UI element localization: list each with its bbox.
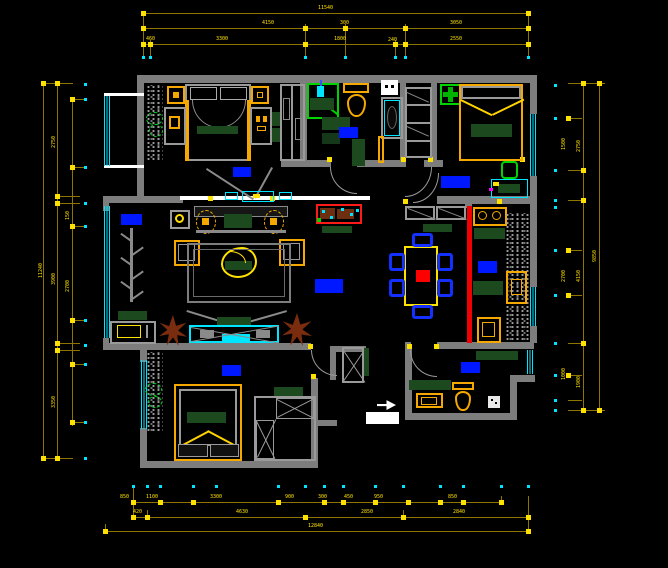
entry-rug[interactable]	[322, 226, 352, 233]
kitchen-appliance-inner[interactable]	[482, 322, 495, 337]
wall-bath2-south	[405, 413, 517, 420]
bed3-footboard[interactable]	[178, 444, 208, 457]
toilet-tank[interactable]	[343, 83, 369, 93]
label-balcony[interactable]	[121, 214, 142, 225]
dim-dot	[323, 485, 326, 488]
tv-cabinet-box[interactable]	[256, 330, 270, 338]
dim-tick	[303, 42, 308, 47]
wall-balcony-south	[103, 343, 161, 350]
dim-text: 2850	[361, 509, 373, 515]
dresser-knob[interactable]	[256, 116, 260, 122]
dim-dot	[404, 56, 407, 59]
dim-dot	[304, 485, 307, 488]
dresser-lamp[interactable]	[169, 116, 180, 129]
dim-line-top-1	[143, 13, 529, 14]
wall-east-3	[530, 326, 537, 343]
balcony-green-shelf[interactable]	[118, 311, 147, 320]
dim-line-left-3	[72, 99, 73, 426]
console-star[interactable]	[322, 210, 325, 213]
dim-dot	[402, 485, 405, 488]
dim-text: 1000	[561, 368, 567, 380]
dim-text: 2700	[65, 280, 71, 292]
dim-tick	[131, 515, 136, 520]
dim-tick	[343, 26, 348, 31]
label-kitchen[interactable]	[478, 261, 497, 273]
desk-keyboard[interactable]	[498, 184, 520, 193]
dim-line-top-3	[143, 44, 529, 45]
kitchen-green-bar[interactable]	[473, 281, 503, 295]
toilet-bowl[interactable]	[347, 94, 366, 117]
dim-ext	[568, 400, 582, 401]
dim-tick	[403, 26, 408, 31]
dim-ext	[57, 350, 80, 351]
dim-text: 2750	[576, 140, 582, 152]
dim-dot	[277, 485, 280, 488]
dim-dot	[149, 56, 152, 59]
wall-b3-south	[140, 461, 318, 468]
dim-text: 2550	[450, 36, 462, 42]
dim-tick	[461, 500, 466, 505]
dim-tick	[55, 81, 60, 86]
dim-tick	[581, 81, 586, 86]
dim-dot	[527, 485, 530, 488]
dim-dot	[159, 485, 162, 488]
dim-text: 4150	[262, 20, 274, 26]
dim-dot	[215, 485, 218, 488]
shower-shelf[interactable]	[310, 98, 334, 110]
washing-machine-door[interactable]	[117, 325, 141, 338]
dim-tick	[70, 224, 75, 229]
dim-text: 3350	[51, 396, 57, 408]
dim-tick	[158, 500, 163, 505]
tv-screen[interactable]	[217, 317, 251, 325]
dim-tick	[141, 26, 146, 31]
door-marker[interactable]	[208, 196, 213, 201]
dim-text: 300	[318, 494, 327, 500]
dim-line-top-2	[143, 28, 529, 29]
wall-top	[137, 75, 537, 83]
dim-dot	[132, 485, 135, 488]
dim-dot	[554, 117, 557, 120]
potted-plant[interactable]	[282, 313, 312, 346]
dim-dot	[554, 169, 557, 172]
sideboard-b1[interactable]	[279, 192, 292, 200]
shelf-green[interactable]	[272, 112, 280, 126]
cad-floor-plan-canvas[interactable]: 1154041503003050460330018002402550850110…	[0, 0, 668, 568]
wardrobe-cell[interactable]	[295, 118, 302, 140]
dim-text: 3300	[216, 36, 228, 42]
dim-ext	[57, 343, 80, 344]
door-arc-bathroom2[interactable]	[410, 350, 437, 377]
dim-text: 3050	[450, 20, 462, 26]
dim-tick	[581, 198, 586, 203]
entry-window-dot[interactable]	[385, 85, 388, 88]
label-dining[interactable]	[441, 176, 470, 188]
dim-dot	[84, 363, 87, 366]
dining-chair[interactable]	[389, 253, 405, 271]
dim-dot	[84, 344, 87, 347]
plant-scribble[interactable]	[149, 124, 163, 137]
dim-ext	[568, 170, 582, 171]
dim-tick	[55, 456, 60, 461]
dim-ext	[568, 343, 582, 344]
dim-dot	[84, 202, 87, 205]
door-marker[interactable]	[407, 344, 412, 349]
toilet2-bowl[interactable]	[455, 391, 471, 411]
dim-tick	[566, 293, 571, 298]
dim-tick	[438, 500, 443, 505]
bath2-shelf-green[interactable]	[409, 380, 451, 390]
dim-tick	[341, 500, 346, 505]
basin2-bowl[interactable]	[421, 397, 437, 405]
dim-tick	[373, 500, 378, 505]
console-star[interactable]	[341, 208, 344, 211]
dim-line-left-2	[57, 83, 58, 458]
dim-tick	[566, 116, 571, 121]
dim-tick	[41, 81, 46, 86]
dim-tick	[322, 500, 327, 505]
dim-text: 2700	[561, 270, 567, 282]
wall-east-2	[530, 176, 537, 287]
dim-tick	[581, 168, 586, 173]
door-marker[interactable]	[497, 199, 502, 204]
dim-tick	[406, 500, 411, 505]
dim-dot	[374, 485, 377, 488]
door-arc-bathroom[interactable]	[330, 167, 357, 194]
kitchen-counter-green[interactable]	[474, 228, 505, 239]
dim-tick	[103, 529, 108, 534]
desk-accent[interactable]	[493, 182, 499, 186]
dim-tick	[70, 97, 75, 102]
dim-dot	[554, 399, 557, 402]
dim-tick	[55, 348, 60, 353]
bed2-headboard[interactable]	[461, 86, 521, 99]
dim-tick	[401, 515, 406, 520]
dim-text: 900	[285, 494, 294, 500]
dim-dot	[192, 485, 195, 488]
dim-text: 11540	[318, 5, 333, 11]
dim-dot	[554, 84, 557, 87]
nightstand-knob[interactable]	[173, 92, 179, 98]
dim-tick	[148, 42, 153, 47]
bed2-blanket[interactable]	[471, 124, 512, 137]
console-green-dot[interactable]	[317, 218, 321, 222]
dining-chair[interactable]	[412, 305, 433, 319]
toilet2-tank[interactable]	[452, 382, 474, 390]
dim-dot	[462, 485, 465, 488]
sofa-plant-dot[interactable]	[270, 218, 277, 225]
dim-ext	[143, 13, 144, 58]
dim-tick	[141, 11, 146, 16]
bath2-counter-green[interactable]	[476, 351, 518, 360]
dim-text: 850	[120, 494, 129, 500]
dim-tick	[581, 341, 586, 346]
wall-balcony-top	[103, 196, 183, 203]
dim-dot	[84, 421, 87, 424]
dim-tick	[303, 26, 308, 31]
dim-tick	[403, 42, 408, 47]
dim-dot	[84, 225, 87, 228]
dim-text: 9850	[592, 250, 598, 262]
lamp-circle[interactable]	[175, 214, 184, 223]
dim-dot	[554, 206, 557, 209]
dim-dot	[84, 457, 87, 460]
dim-tick	[70, 362, 75, 367]
dim-tick	[566, 248, 571, 253]
closet-shelf[interactable]	[407, 140, 430, 142]
balcony-plant-branch[interactable]	[132, 291, 144, 300]
stove-burner[interactable]	[478, 211, 487, 220]
sofa-front-edge[interactable]	[196, 230, 286, 233]
window-kitchen-east	[530, 287, 537, 326]
dim-tick	[55, 194, 60, 199]
dim-tick	[131, 500, 136, 505]
red-accent-wall[interactable]	[467, 206, 472, 343]
dim-dot	[554, 342, 557, 345]
dresser-drawer[interactable]	[257, 126, 266, 131]
floor-drain-dot[interactable]	[491, 399, 493, 401]
dim-ext	[568, 200, 582, 201]
dim-ext	[528, 496, 529, 532]
dim-tick	[597, 408, 602, 413]
basin-bowl[interactable]	[387, 106, 397, 129]
dim-line-bottom-1	[133, 502, 501, 503]
dim-tick	[499, 500, 504, 505]
dim-tick	[141, 42, 146, 47]
window-balcony-west	[104, 206, 111, 338]
dim-tick	[276, 500, 281, 505]
balcony-plant-branch[interactable]	[132, 247, 144, 256]
dim-dot	[84, 98, 87, 101]
north-arrow-icon[interactable]	[377, 399, 396, 410]
dim-text: 3300	[210, 494, 222, 500]
wall-east-1	[530, 83, 537, 114]
desk-magenta-mark[interactable]	[489, 188, 493, 191]
dining-chair[interactable]	[412, 233, 433, 247]
dim-tick	[55, 341, 60, 346]
dim-tick	[70, 420, 75, 425]
label-bathroom2[interactable]	[461, 362, 480, 373]
door-marker[interactable]	[308, 344, 313, 349]
dining-chair[interactable]	[437, 279, 453, 297]
scale-bar[interactable]	[366, 412, 399, 424]
bath-door-leaf[interactable]	[378, 136, 384, 163]
dim-tick	[597, 81, 602, 86]
plant-scribble[interactable]	[145, 383, 162, 396]
dim-dot	[527, 56, 530, 59]
console-star[interactable]	[356, 209, 359, 212]
window-b1-bay	[104, 96, 111, 166]
label-bedroom1[interactable]	[233, 167, 251, 177]
closet-shelf[interactable]	[407, 104, 430, 106]
desk-chair[interactable]	[501, 161, 518, 179]
dim-dot	[84, 166, 87, 169]
dim-dot	[554, 294, 557, 297]
ceiling-fan-blade[interactable]	[443, 92, 458, 97]
door-marker[interactable]	[403, 199, 408, 204]
label-bedroom3[interactable]	[222, 365, 241, 376]
dim-text: 1500	[561, 138, 567, 150]
dim-dot	[554, 409, 557, 412]
console-star[interactable]	[350, 213, 353, 216]
dim-tick	[526, 529, 531, 534]
wall-mid-a	[281, 160, 331, 167]
nightstand-knob[interactable]	[257, 92, 263, 98]
wardrobe-divider[interactable]	[291, 84, 293, 161]
dim-text: 420	[133, 509, 142, 515]
dim-text: 3900	[51, 273, 57, 285]
sofa-cushion[interactable]	[224, 214, 252, 228]
panel-rug[interactable]	[423, 224, 452, 232]
wall-living-south	[160, 343, 311, 350]
window-b2-east	[530, 114, 537, 176]
dim-ext	[528, 13, 529, 58]
bath-cabinet[interactable]	[322, 133, 340, 144]
dim-tick	[145, 515, 150, 520]
shower-light-stem[interactable]	[320, 80, 322, 86]
sideboard-b1[interactable]	[225, 192, 238, 200]
dining-chair[interactable]	[389, 279, 405, 297]
door-marker[interactable]	[327, 157, 332, 162]
dim-text: 2750	[51, 136, 57, 148]
balcony-plant-branch[interactable]	[132, 271, 144, 280]
dim-dot	[500, 485, 503, 488]
bed1-pillow[interactable]	[190, 87, 217, 100]
dim-tick	[41, 456, 46, 461]
dim-dot	[84, 319, 87, 322]
dim-dot	[146, 485, 149, 488]
shower-light[interactable]	[317, 86, 324, 97]
dim-ext	[57, 203, 80, 204]
dim-line-bottom-3	[105, 531, 529, 532]
dim-text: 12840	[308, 523, 323, 529]
dresser-knob[interactable]	[263, 116, 267, 122]
console-star[interactable]	[330, 216, 333, 219]
dim-dot	[84, 83, 87, 86]
dim-text: 240	[388, 37, 397, 43]
dim-text: 850	[448, 494, 457, 500]
dim-dot	[554, 374, 557, 377]
dim-line-right-2	[583, 83, 584, 413]
washing-machine-line[interactable]	[146, 325, 148, 338]
dim-tick	[581, 408, 586, 413]
dining-chair[interactable]	[437, 253, 453, 271]
dim-text: 150	[65, 211, 71, 220]
bed1-pillow[interactable]	[220, 87, 247, 100]
entry-window-dot[interactable]	[391, 85, 394, 88]
bed1-blanket[interactable]	[197, 126, 238, 134]
label-bathroom[interactable]	[339, 127, 358, 138]
dim-text: 11240	[38, 263, 44, 278]
living-rug-inner[interactable]	[193, 249, 285, 297]
shelf-green[interactable]	[272, 128, 280, 142]
sofa-plant-dot[interactable]	[202, 218, 209, 225]
dim-dot	[142, 56, 145, 59]
wall-mid-c	[424, 160, 443, 167]
dim-text: 300	[340, 20, 349, 26]
dim-text: 950	[374, 494, 383, 500]
dim-dot	[394, 56, 397, 59]
dim-tick	[303, 515, 308, 520]
closet-shelf[interactable]	[407, 122, 430, 124]
door-marker[interactable]	[434, 344, 439, 349]
dim-dot	[344, 56, 347, 59]
dim-tick	[70, 165, 75, 170]
stove-burner[interactable]	[492, 211, 501, 220]
dim-tick	[70, 318, 75, 323]
potted-plant[interactable]	[159, 315, 187, 346]
sideboard-accent[interactable]	[253, 194, 260, 198]
door-marker[interactable]	[311, 374, 316, 379]
dim-tick	[526, 11, 531, 16]
hall-cabinet-green[interactable]	[364, 348, 369, 376]
dim-text: 1900	[576, 376, 582, 388]
dim-dot	[304, 56, 307, 59]
bed3-footboard[interactable]	[210, 444, 239, 457]
plant-scribble[interactable]	[148, 396, 162, 408]
entry-window[interactable]	[381, 80, 398, 95]
floor-drain[interactable]	[488, 396, 500, 408]
dim-dot	[342, 485, 345, 488]
dim-text: 460	[146, 36, 155, 42]
dim-tick	[526, 26, 531, 31]
dim-line-right-1	[599, 83, 600, 413]
dim-ext	[57, 196, 80, 197]
wall-bath2-east-low	[510, 380, 517, 420]
dim-tick	[526, 42, 531, 47]
dim-text: 450	[344, 494, 353, 500]
dining-table-center[interactable]	[416, 270, 430, 282]
dim-tick	[55, 201, 60, 206]
bath-cabinet[interactable]	[352, 139, 365, 166]
dim-text: 4150	[576, 270, 582, 282]
dim-dot	[554, 199, 557, 202]
dim-text: 2840	[453, 509, 465, 515]
dim-tick	[191, 500, 196, 505]
wardrobe-cell[interactable]	[283, 98, 290, 120]
kitchen-sink-bowl[interactable]	[511, 279, 522, 295]
dim-line-bottom-2	[133, 517, 529, 518]
dim-text: 4630	[236, 509, 248, 515]
bed3-pillow[interactable]	[187, 412, 226, 423]
dim-text: 1800	[334, 36, 346, 42]
dim-dot	[554, 249, 557, 252]
door-arc-bedroom2[interactable]	[413, 173, 439, 203]
dim-dot	[439, 485, 442, 488]
wall-kitchen-south	[437, 342, 534, 349]
label-living[interactable]	[315, 279, 343, 293]
dim-tick	[526, 515, 531, 520]
window-bath2-east	[527, 350, 534, 374]
dim-text: 1100	[146, 494, 158, 500]
door-arc-bedroom3[interactable]	[311, 350, 337, 376]
floor-drain-dot[interactable]	[495, 402, 497, 404]
